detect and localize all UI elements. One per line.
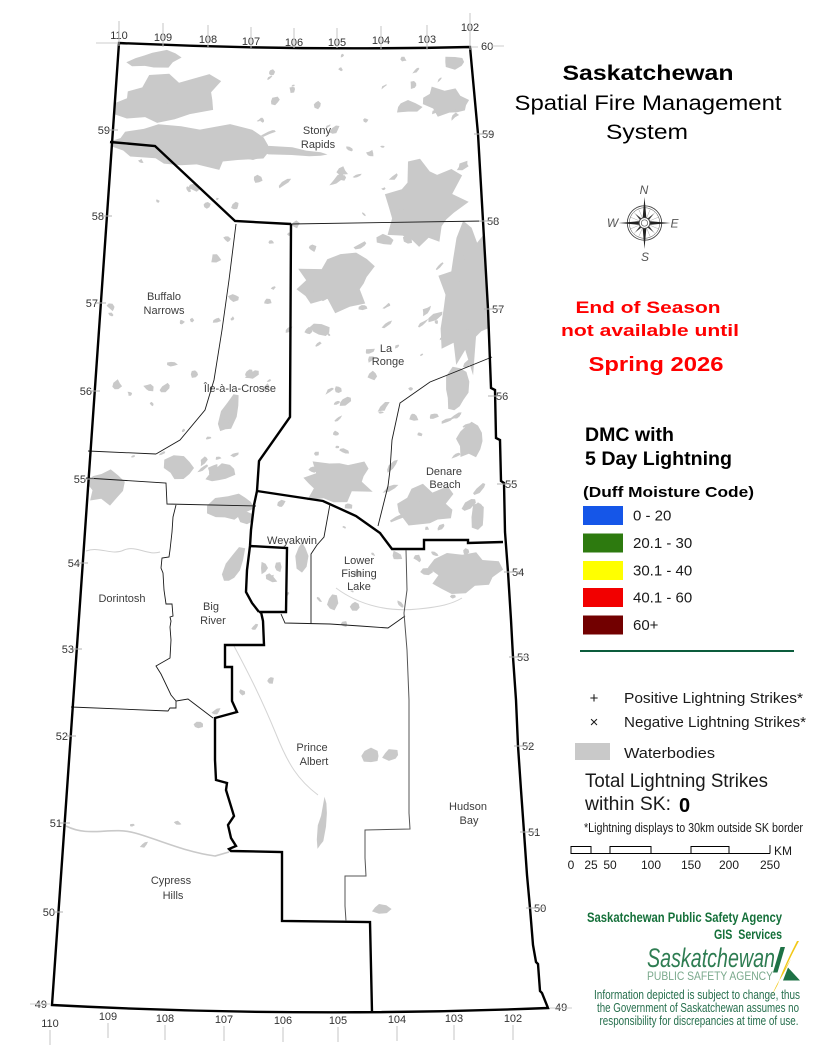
svg-text:56: 56: [80, 386, 92, 398]
svg-text:60: 60: [481, 41, 493, 53]
svg-text:30.1 - 40: 30.1 - 40: [633, 563, 692, 580]
svg-text:0 - 20: 0 - 20: [633, 508, 671, 525]
svg-text:54: 54: [68, 558, 80, 570]
svg-text:Bay: Bay: [460, 815, 479, 827]
svg-text:Total Lightning Strikes: Total Lightning Strikes: [585, 771, 768, 792]
svg-text:Positive Lightning Strikes*: Positive Lightning Strikes*: [624, 690, 803, 707]
svg-text:40.1 - 60: 40.1 - 60: [633, 590, 692, 607]
svg-text:150: 150: [681, 858, 701, 872]
svg-text:Île-à-la-Crosse: Île-à-la-Crosse: [203, 382, 276, 395]
svg-text:107: 107: [215, 1014, 233, 1026]
svg-text:200: 200: [719, 858, 739, 872]
svg-text:102: 102: [504, 1013, 522, 1025]
svg-text:Dorintosh: Dorintosh: [98, 593, 145, 605]
svg-text:KM: KM: [774, 844, 792, 858]
svg-text:52: 52: [522, 741, 534, 753]
svg-text:Fishing: Fishing: [341, 568, 376, 580]
svg-text:×: ×: [590, 714, 599, 731]
svg-text:Beach: Beach: [429, 479, 460, 491]
svg-text:100: 100: [641, 858, 661, 872]
svg-text:Hudson: Hudson: [449, 801, 487, 813]
svg-text:Narrows: Narrows: [144, 305, 185, 317]
svg-text:Stony: Stony: [303, 125, 332, 137]
svg-text:River: River: [200, 615, 226, 627]
svg-text:Rapids: Rapids: [301, 139, 336, 151]
svg-text:Ronge: Ronge: [372, 356, 404, 368]
svg-text:System: System: [606, 121, 688, 144]
svg-text:Spatial Fire Management: Spatial Fire Management: [515, 92, 782, 115]
svg-text:*Lightning displays to 30km ou: *Lightning displays to 30km outside SK b…: [584, 821, 803, 835]
svg-text:Albert: Albert: [300, 756, 329, 768]
svg-text:25: 25: [584, 858, 598, 872]
svg-text:105: 105: [329, 1015, 347, 1027]
svg-text:55: 55: [505, 479, 517, 491]
svg-text:109: 109: [99, 1011, 117, 1023]
svg-text:59: 59: [98, 125, 110, 137]
svg-text:104: 104: [388, 1014, 406, 1026]
svg-text:(Duff Moisture Code): (Duff Moisture Code): [583, 484, 754, 501]
svg-text:Prince: Prince: [296, 742, 327, 754]
svg-text:responsibility for discrepanci: responsibility for discrepancies at time…: [600, 1014, 799, 1028]
svg-text:58: 58: [487, 216, 499, 228]
svg-text:Saskatchewan: Saskatchewan: [563, 62, 734, 85]
svg-text:50: 50: [43, 907, 55, 919]
svg-text:the Government of Saskatchewan: the Government of Saskatchewan assumes n…: [597, 1001, 799, 1015]
svg-text:DMC with: DMC with: [585, 425, 674, 446]
svg-text:within SK:: within SK:: [584, 794, 671, 815]
svg-text:58: 58: [92, 211, 104, 223]
svg-text:0: 0: [568, 858, 575, 872]
svg-text:103: 103: [445, 1013, 463, 1025]
svg-text:57: 57: [492, 304, 504, 316]
svg-text:50: 50: [534, 903, 546, 915]
svg-text:Saskatchewan Public Safety Age: Saskatchewan Public Safety Agency: [587, 910, 782, 925]
svg-text:Lake: Lake: [347, 581, 371, 593]
svg-text:Big: Big: [203, 601, 219, 613]
svg-text:Information depicted is subjec: Information depicted is subject to chang…: [594, 988, 800, 1002]
svg-text:E: E: [670, 217, 679, 231]
svg-text:W: W: [607, 216, 620, 230]
svg-text:PUBLIC SAFETY AGENCY: PUBLIC SAFETY AGENCY: [647, 969, 773, 983]
svg-text:Negative Lightning Strikes*: Negative Lightning Strikes*: [624, 714, 806, 731]
svg-text:53: 53: [62, 644, 74, 656]
svg-text:S: S: [641, 250, 649, 264]
svg-text:GIS Services: GIS Services: [714, 927, 782, 942]
svg-text:55: 55: [74, 474, 86, 486]
svg-text:50: 50: [603, 858, 617, 872]
svg-text:53: 53: [517, 652, 529, 664]
svg-text:52: 52: [56, 731, 68, 743]
svg-text:60+: 60+: [633, 617, 659, 634]
svg-text:not available until: not available until: [561, 321, 739, 340]
svg-text:20.1 - 30: 20.1 - 30: [633, 535, 692, 552]
svg-text:+: +: [590, 690, 599, 707]
svg-text:110: 110: [41, 1018, 59, 1030]
svg-text:54: 54: [512, 567, 524, 579]
svg-text:0: 0: [679, 795, 690, 817]
svg-text:La: La: [380, 343, 393, 355]
svg-text:250: 250: [760, 858, 780, 872]
svg-text:57: 57: [86, 298, 98, 310]
svg-text:51: 51: [50, 818, 62, 830]
svg-text:Weyakwin: Weyakwin: [267, 535, 317, 547]
svg-text:51: 51: [528, 827, 540, 839]
svg-text:End of Season: End of Season: [576, 298, 721, 317]
svg-text:Hills: Hills: [163, 890, 184, 902]
svg-text:49: 49: [35, 999, 47, 1011]
svg-text:Spring 2026: Spring 2026: [589, 354, 724, 376]
svg-text:Cypress: Cypress: [151, 875, 192, 887]
svg-text:59: 59: [482, 129, 494, 141]
svg-text:Denare: Denare: [426, 466, 462, 478]
svg-text:5 Day Lightning: 5 Day Lightning: [585, 449, 732, 470]
svg-text:56: 56: [496, 391, 508, 403]
svg-text:Lower: Lower: [344, 555, 374, 567]
svg-text:Buffalo: Buffalo: [147, 291, 181, 303]
svg-text:108: 108: [156, 1013, 174, 1025]
svg-text:Waterbodies: Waterbodies: [624, 745, 715, 762]
svg-text:N: N: [640, 183, 649, 197]
svg-text:106: 106: [274, 1015, 292, 1027]
